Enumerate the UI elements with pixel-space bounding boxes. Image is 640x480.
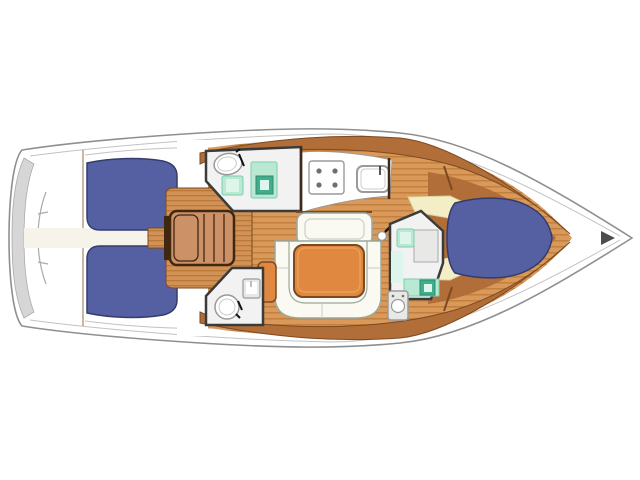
forward-head-toilet-bowl xyxy=(392,300,405,313)
stove xyxy=(309,161,344,194)
stove-burner xyxy=(316,168,321,173)
stove-burner xyxy=(316,182,321,187)
deck-strip-top xyxy=(177,140,208,188)
steps-top-tread xyxy=(174,215,198,261)
forward-head-counter-drain xyxy=(424,284,432,292)
shower-drain xyxy=(260,180,269,190)
companionway-steps xyxy=(164,211,234,265)
yacht-floor-plan xyxy=(0,0,640,480)
stove-burner xyxy=(332,168,337,173)
cockpit-bench-upper-cushion xyxy=(87,159,177,230)
stove-burner xyxy=(332,182,337,187)
forward-head-sink-basin xyxy=(400,232,411,244)
aft-head-upper-sink-basin xyxy=(226,179,239,192)
cockpit-walkway xyxy=(24,228,148,248)
forward-head-toilet-button xyxy=(392,295,395,298)
mast-post xyxy=(378,232,387,241)
deck-strip-bottom xyxy=(177,288,208,336)
forward-head-locker xyxy=(391,251,403,283)
forward-head-toilet-button xyxy=(402,295,405,298)
saloon-table xyxy=(294,245,364,297)
cockpit-bench-lower-cushion xyxy=(87,246,177,317)
saloon-bench xyxy=(297,213,372,245)
forward-head-cabinet xyxy=(414,230,438,262)
